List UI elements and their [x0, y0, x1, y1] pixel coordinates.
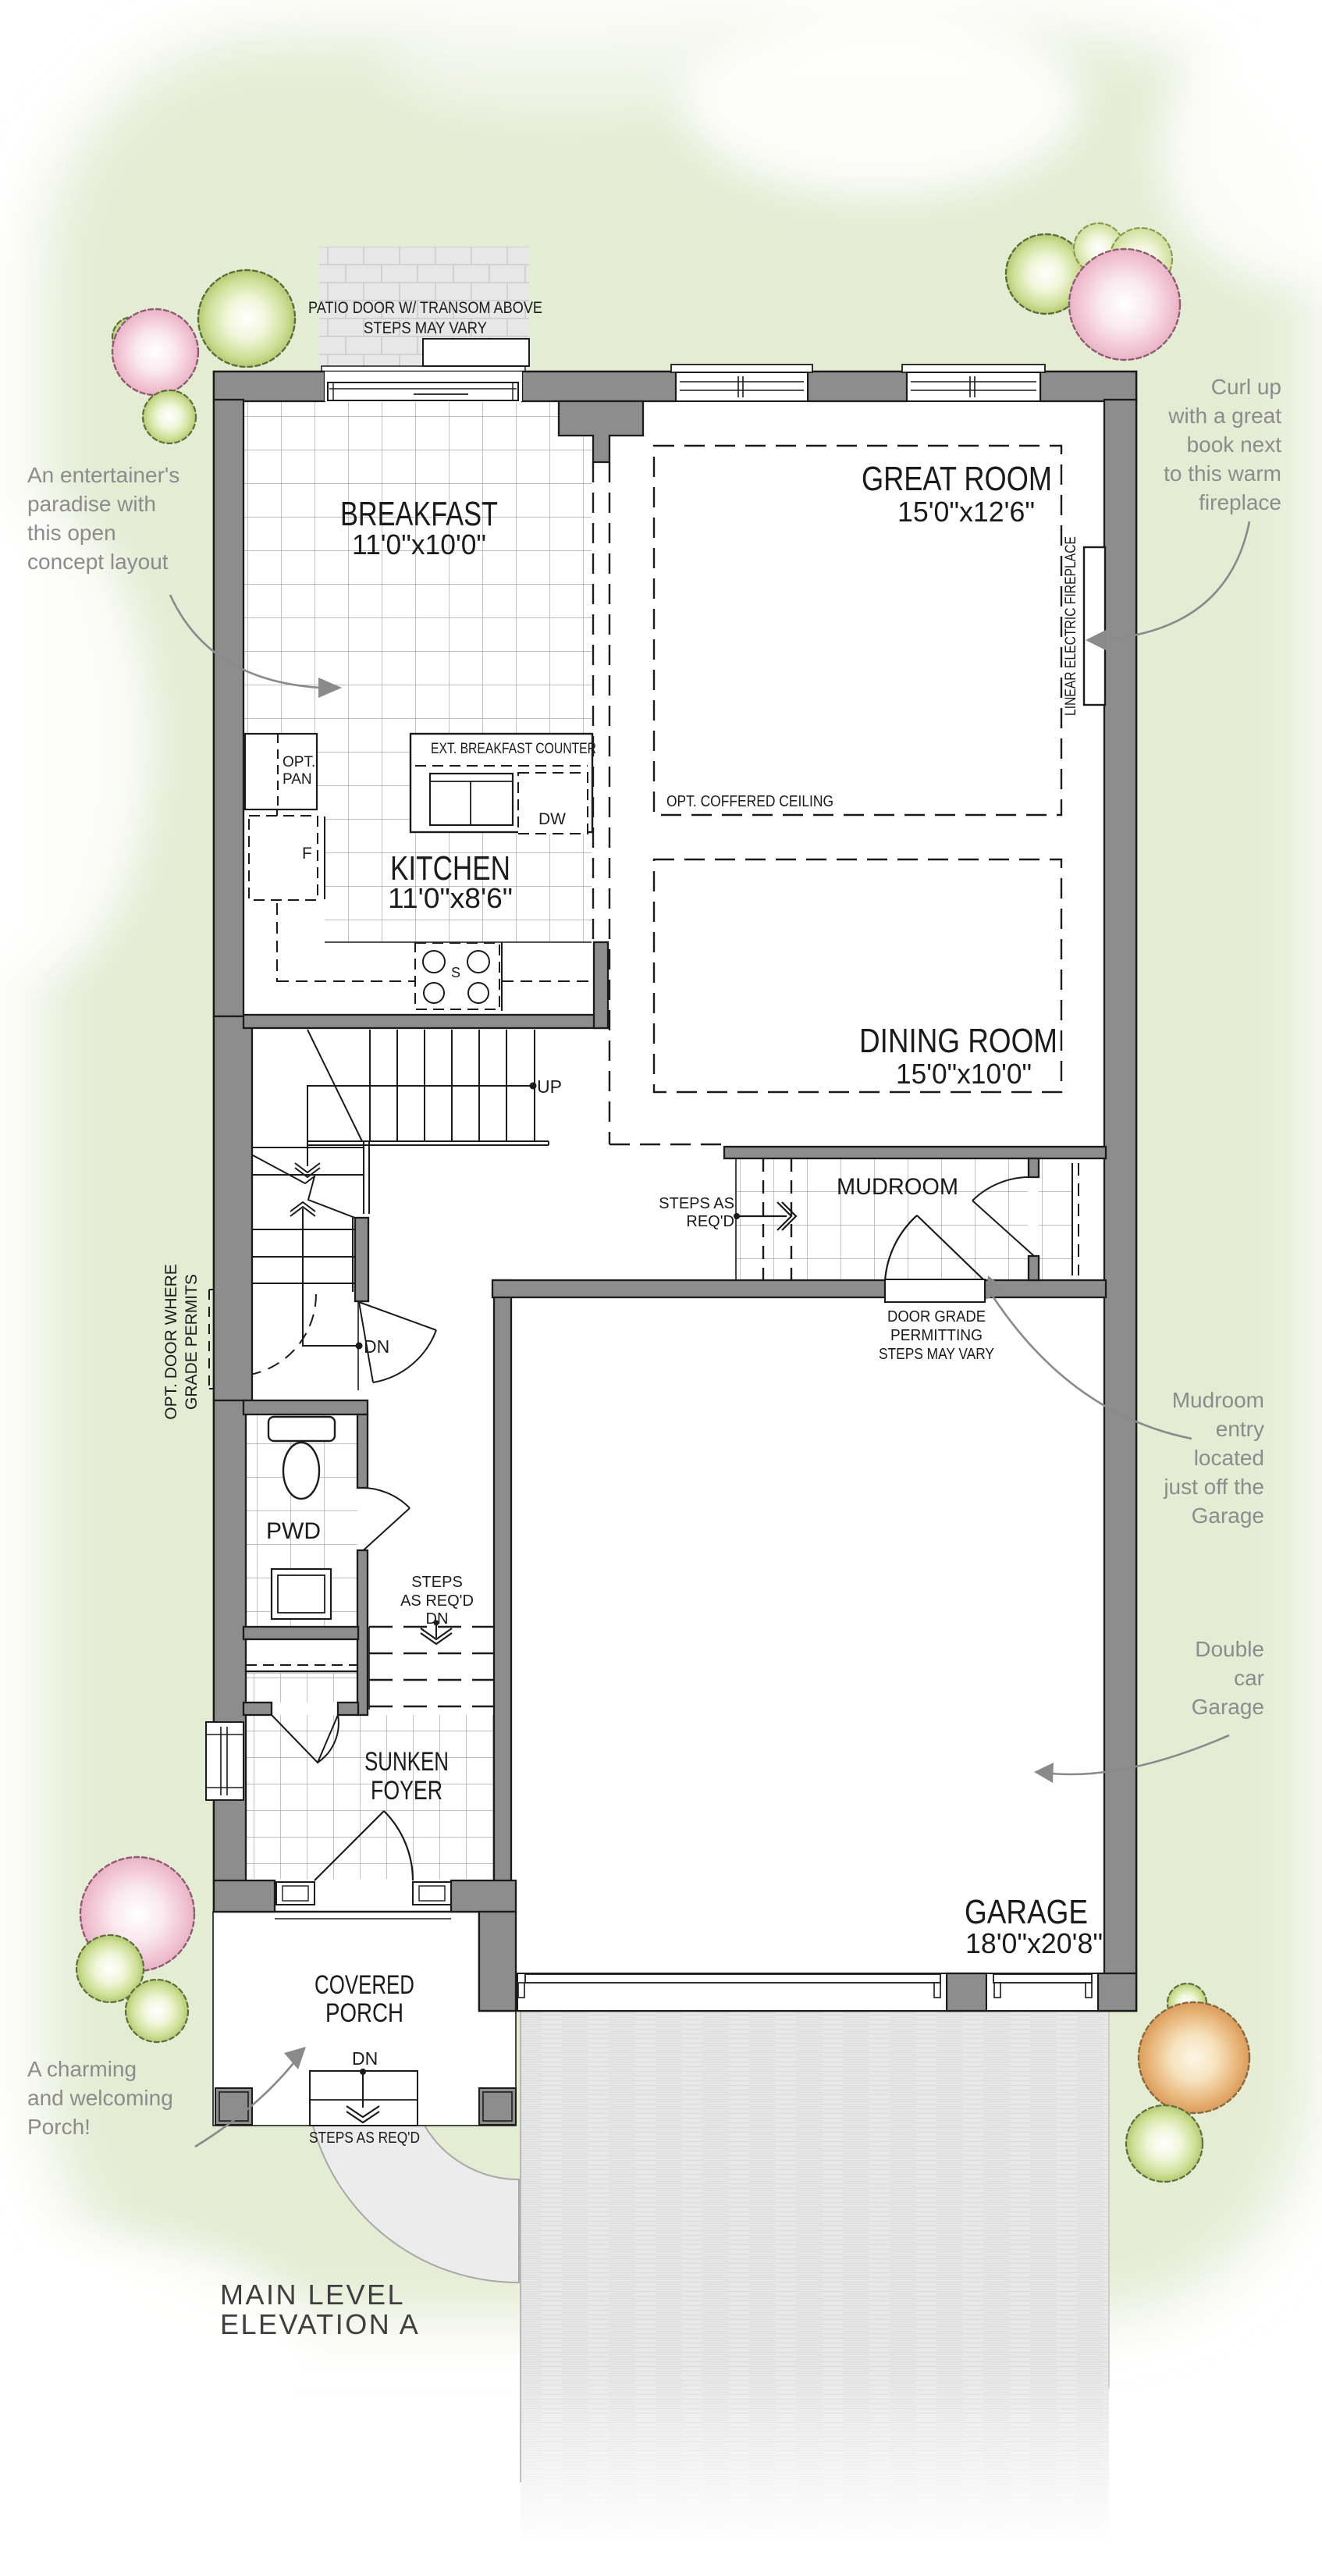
svg-text:DW: DW	[538, 810, 566, 828]
svg-text:11'0"x10'0": 11'0"x10'0"	[352, 528, 486, 560]
svg-text:S: S	[451, 965, 460, 980]
svg-text:11'0"x8'6": 11'0"x8'6"	[388, 882, 513, 914]
svg-text:Curl up: Curl up	[1211, 375, 1281, 399]
svg-text:AS REQ'D: AS REQ'D	[400, 1592, 474, 1610]
svg-text:fireplace: fireplace	[1199, 490, 1281, 514]
svg-text:entry: entry	[1216, 1417, 1264, 1441]
svg-text:PORCH: PORCH	[325, 1998, 403, 2028]
svg-text:PERMITTING: PERMITTING	[890, 1327, 983, 1344]
svg-text:SUNKEN: SUNKEN	[364, 1747, 449, 1777]
svg-text:PATIO DOOR W/ TRANSOM ABOVE: PATIO DOOR W/ TRANSOM ABOVE	[308, 299, 542, 317]
svg-text:DN: DN	[426, 1610, 449, 1628]
svg-text:Porch!: Porch!	[27, 2115, 91, 2139]
svg-text:GARAGE: GARAGE	[965, 1893, 1088, 1931]
svg-text:DOOR GRADE: DOOR GRADE	[887, 1308, 986, 1325]
svg-text:BREAKFAST: BREAKFAST	[340, 495, 498, 533]
svg-text:Mudroom: Mudroom	[1172, 1388, 1264, 1412]
svg-text:EXT. BREAKFAST COUNTER: EXT. BREAKFAST COUNTER	[431, 741, 596, 757]
svg-text:15'0"x12'6": 15'0"x12'6"	[897, 496, 1035, 528]
svg-text:this open: this open	[27, 521, 116, 545]
svg-text:F: F	[302, 845, 312, 863]
svg-text:MAIN LEVEL: MAIN LEVEL	[220, 2279, 405, 2311]
svg-text:with a great: with a great	[1167, 404, 1281, 428]
svg-text:MUDROOM: MUDROOM	[837, 1174, 958, 1200]
svg-text:OPT. DOOR WHERE: OPT. DOOR WHERE	[162, 1264, 180, 1420]
svg-text:18'0"x20'8": 18'0"x20'8"	[965, 1927, 1103, 1959]
svg-text:DN: DN	[364, 1336, 389, 1357]
svg-text:UP: UP	[537, 1076, 562, 1097]
svg-text:OPT.: OPT.	[283, 754, 315, 770]
svg-text:to this warm: to this warm	[1164, 461, 1281, 486]
svg-text:Garage: Garage	[1192, 1503, 1264, 1528]
svg-text:GREAT ROOM: GREAT ROOM	[862, 460, 1052, 498]
svg-text:LINEAR ELECTRIC FIREPLACE: LINEAR ELECTRIC FIREPLACE	[1063, 536, 1079, 716]
svg-text:STEPS MAY VARY: STEPS MAY VARY	[879, 1346, 994, 1363]
svg-text:book next: book next	[1187, 432, 1282, 457]
svg-text:COVERED: COVERED	[315, 1970, 414, 2000]
svg-text:ELEVATION A: ELEVATION A	[220, 2308, 420, 2340]
svg-text:STEPS MAY VARY: STEPS MAY VARY	[364, 319, 487, 337]
svg-text:just off the: just off the	[1163, 1475, 1264, 1499]
svg-text:paradise with: paradise with	[27, 492, 156, 516]
svg-text:located: located	[1194, 1446, 1264, 1470]
svg-text:STEPS AS: STEPS AS	[659, 1195, 734, 1212]
svg-text:concept layout: concept layout	[27, 550, 169, 574]
svg-text:DN: DN	[352, 2048, 378, 2069]
svg-text:Garage: Garage	[1192, 1695, 1264, 1719]
svg-text:15'0"x10'0": 15'0"x10'0"	[896, 1058, 1032, 1090]
svg-text:OPT. COFFERED CEILING: OPT. COFFERED CEILING	[666, 793, 833, 810]
svg-text:A charming: A charming	[27, 2057, 137, 2081]
svg-text:REQ'D: REQ'D	[686, 1213, 734, 1230]
svg-text:PAN: PAN	[283, 771, 312, 788]
svg-text:DINING ROOM: DINING ROOM	[859, 1022, 1057, 1060]
svg-text:STEPS: STEPS	[411, 1574, 463, 1591]
svg-text:and welcoming: and welcoming	[27, 2086, 173, 2110]
svg-text:PWD: PWD	[266, 1518, 321, 1544]
svg-text:GRADE PERMITS: GRADE PERMITS	[183, 1274, 201, 1410]
svg-text:car: car	[1234, 1666, 1264, 1690]
svg-text:FOYER: FOYER	[371, 1776, 442, 1806]
svg-text:Double: Double	[1195, 1637, 1264, 1661]
svg-text:An entertainer's: An entertainer's	[27, 463, 179, 487]
svg-text:STEPS AS REQ'D: STEPS AS REQ'D	[309, 2129, 420, 2147]
